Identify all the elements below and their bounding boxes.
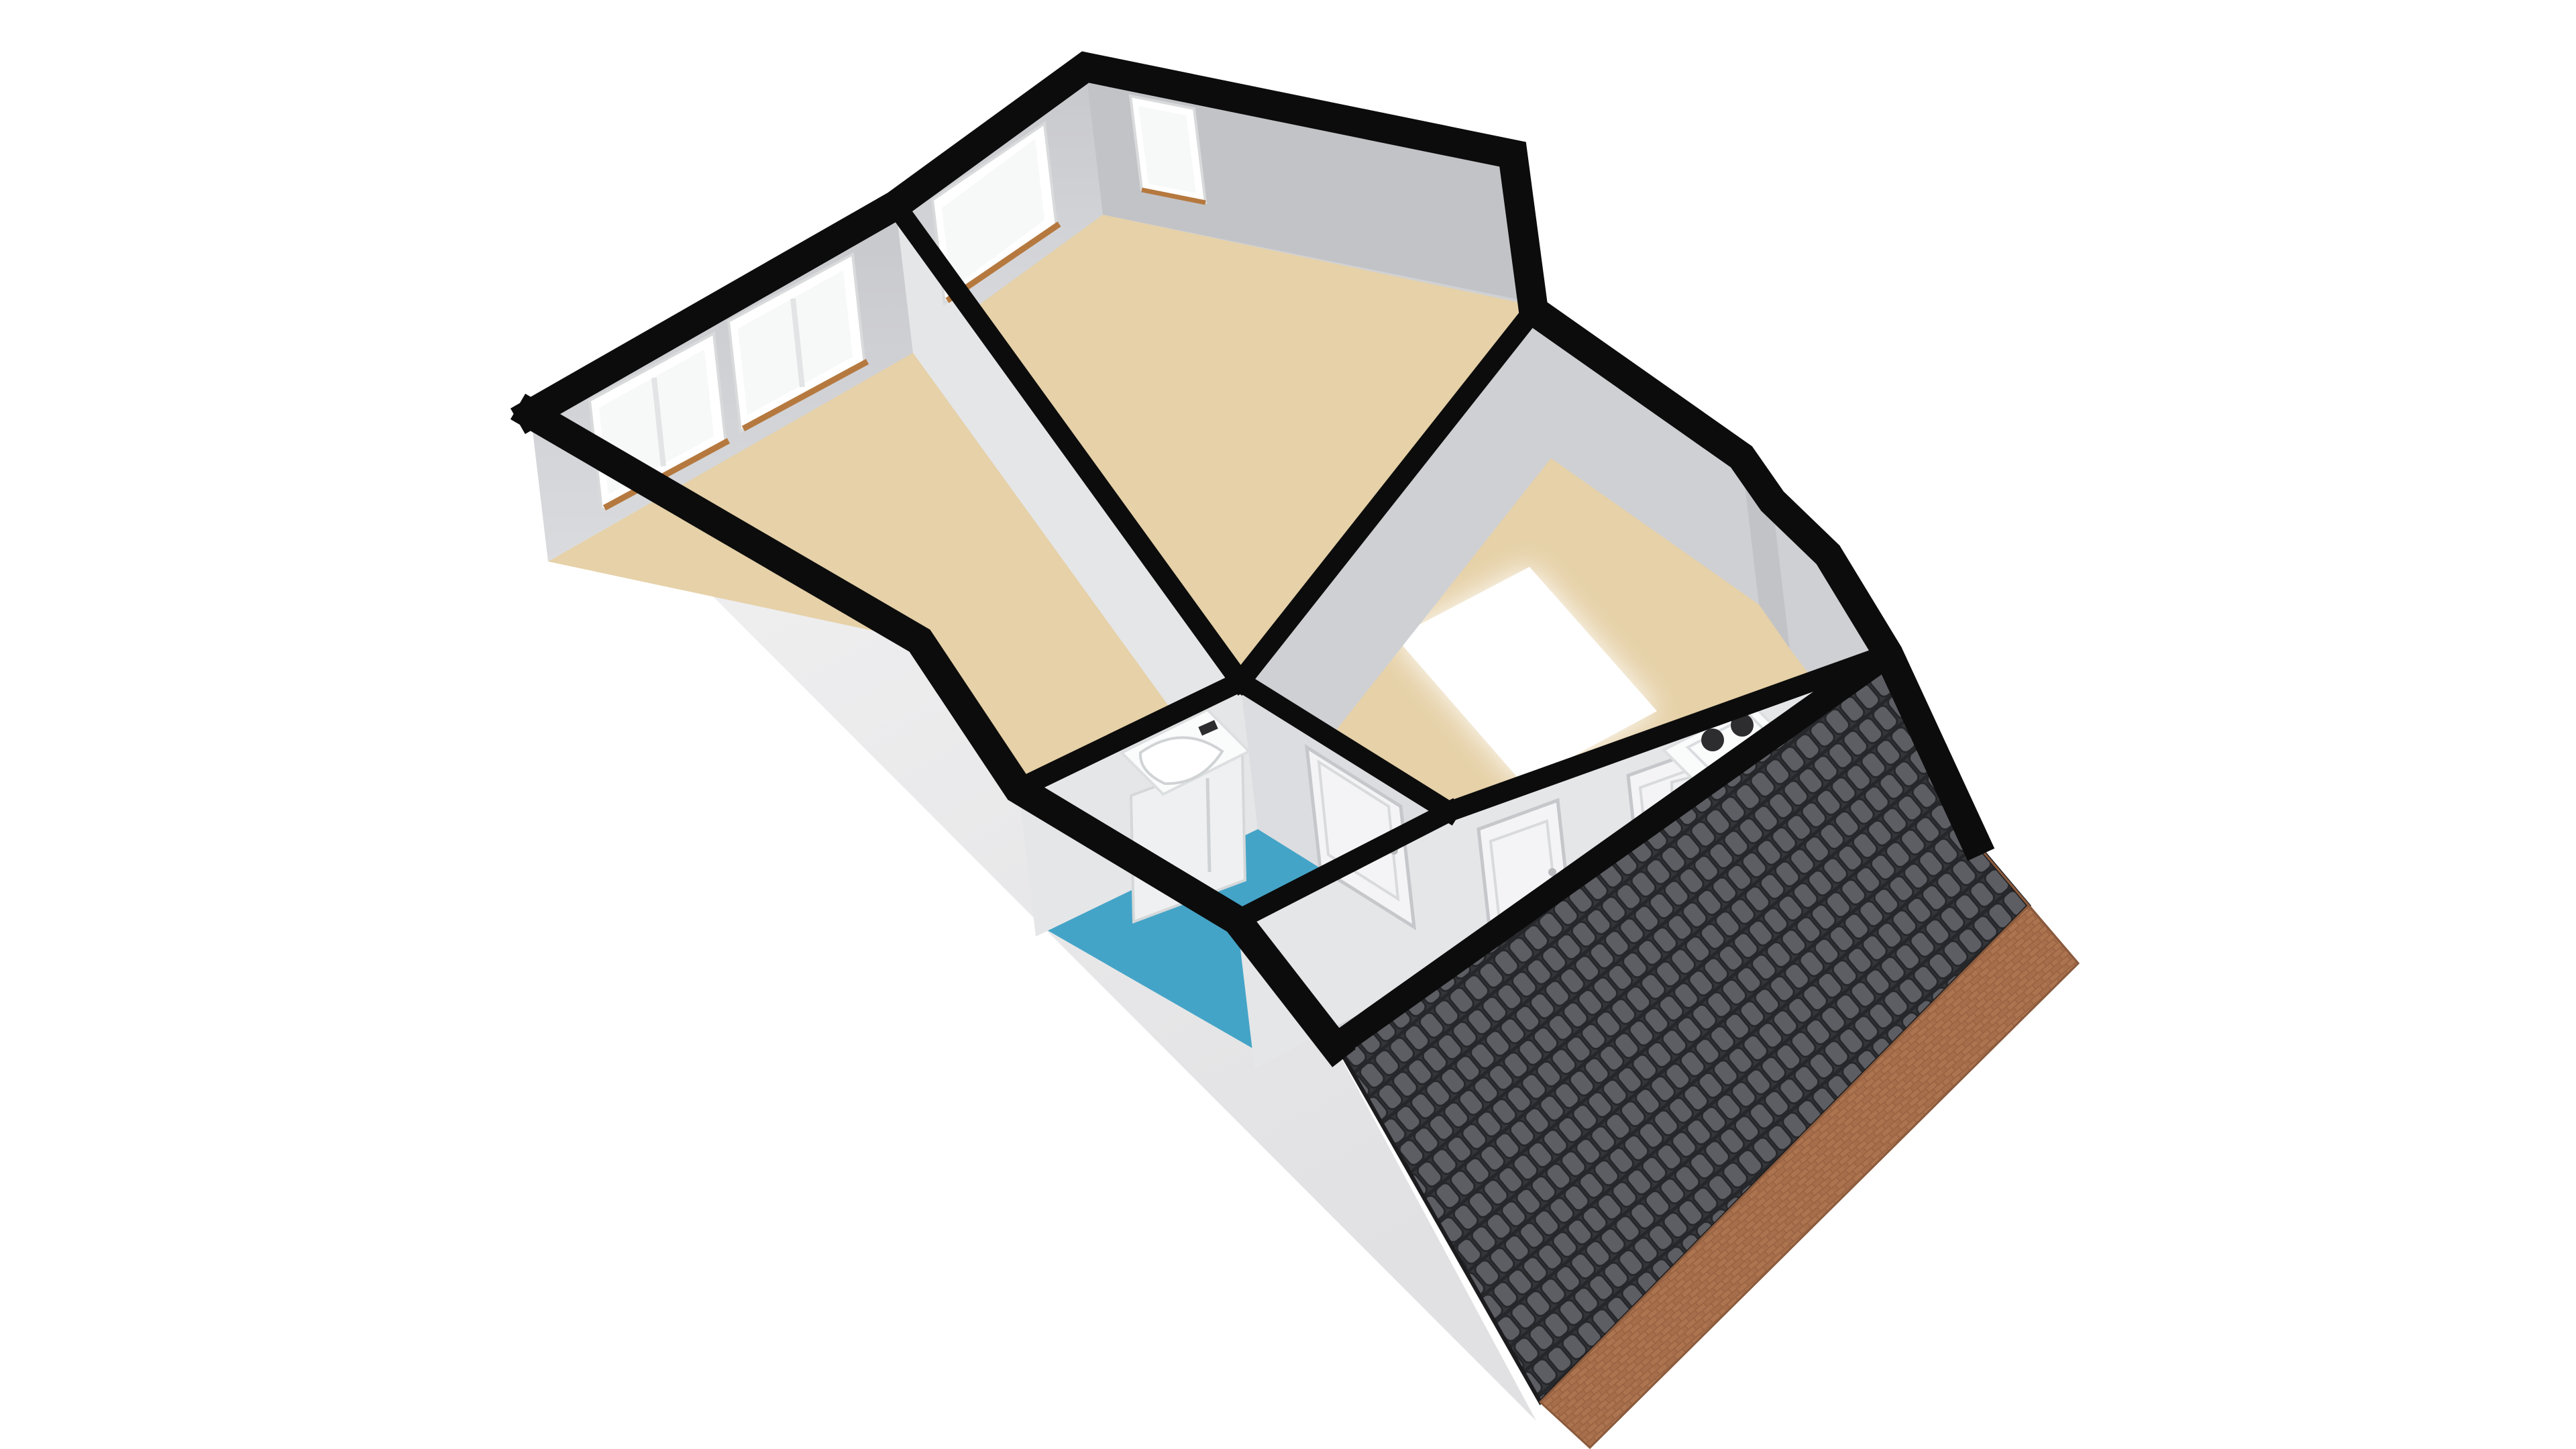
window-top-room-ne — [1130, 96, 1205, 203]
floorplan-3d-viewer-canvas[interactable] — [0, 0, 2576, 1449]
floorplan-3d-render — [0, 0, 2576, 1449]
